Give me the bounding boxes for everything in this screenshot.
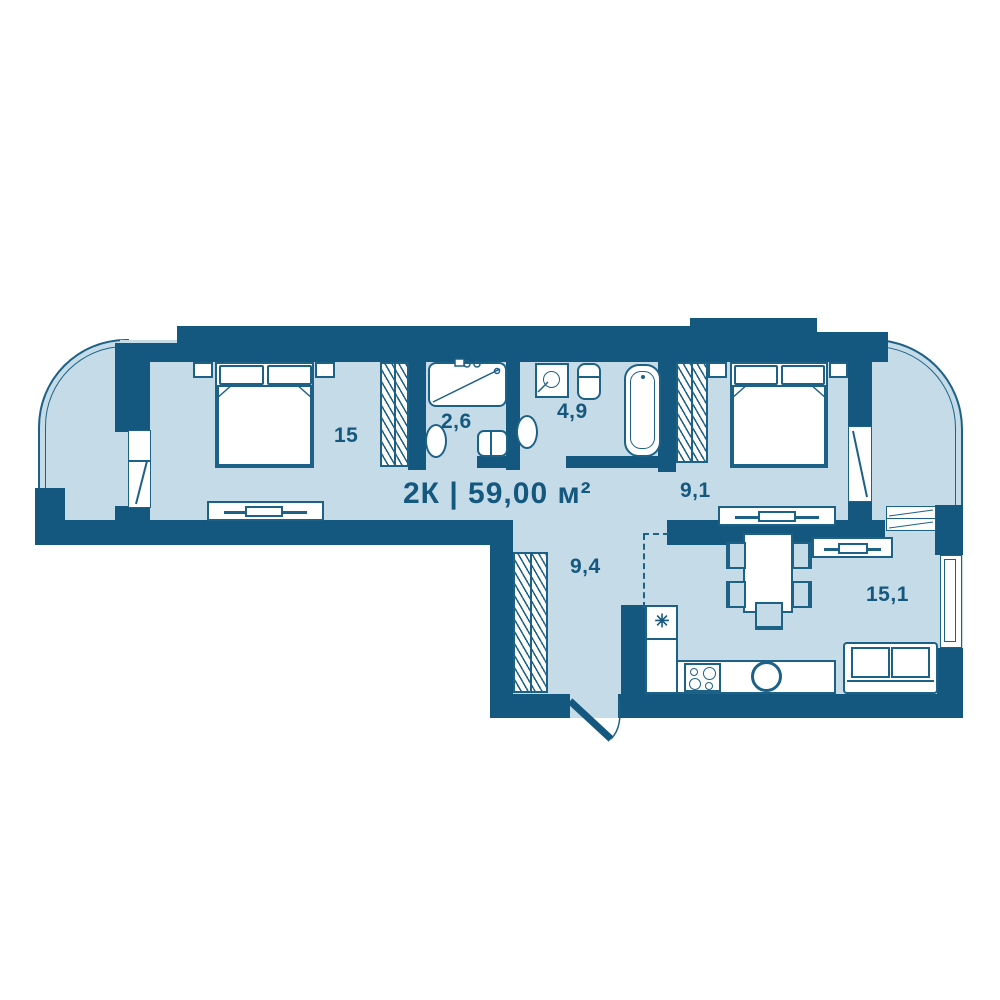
sofa [843,642,938,694]
washer-drum [543,371,560,388]
tv [838,543,868,554]
nightstand [315,362,335,378]
floor-plan: ✳ [0,0,1000,1000]
window-sill [886,518,936,531]
wall-bottom-entrance [490,694,570,718]
wall-bath-bottom-a [477,456,520,468]
tv [245,506,283,517]
wall-top-d [815,332,888,362]
toilet [477,430,508,457]
room-area-label-hallway: 9,4 [570,555,601,579]
kitchen-window-pane [944,559,956,642]
wall-balcony-pier-right [935,505,963,555]
kitchen-window [940,555,962,648]
kitchen-sink [751,661,782,692]
wall-hallway-left [490,545,513,698]
burner [705,682,713,690]
room-area-label-bedroom2: 9,1 [680,479,711,503]
wall-shower-bathroom [506,362,520,470]
wall-top-b [177,326,690,362]
chair [755,602,783,630]
wall-bath-bottom-b [566,456,658,468]
wall-left-upper [115,343,150,432]
bathtub [624,364,661,457]
wardrobe [380,362,409,467]
bathtub-drain [641,375,645,379]
pillow [219,365,264,385]
double-bed [215,362,314,468]
balcony-door-right [848,426,872,502]
room-area-label-kitchen-living: 15,1 [866,583,909,607]
zone-boundary-dashed-h [643,533,669,535]
chair [726,581,746,608]
tv [758,511,796,522]
burner [690,668,698,676]
nightstand [829,362,848,378]
wall-bottom-kitchen [618,694,940,718]
zone-boundary-dashed-v [643,534,645,608]
burner [703,667,716,680]
wall-top-c [690,318,817,362]
balcony-door-left [128,430,151,508]
pillow [267,365,312,385]
room-area-label-bedroom1: 15 [334,424,358,448]
wardrobe [676,362,708,463]
wall-bottom-left [35,520,513,545]
wall-bedroom2-right-lower [848,502,872,533]
nightstand [708,362,727,378]
wall-bedroom2-right-upper [848,362,872,426]
toilet [577,363,601,400]
room-area-label-shower: 2,6 [441,410,472,434]
bathtub-basin [630,371,655,449]
tv-stand [207,501,324,521]
mattress [217,385,312,466]
shower-bath [428,362,507,407]
pillow [781,365,825,385]
wardrobe [513,552,548,693]
nightstand [193,362,213,378]
floor-entrance-gap [568,694,620,718]
washing-machine [535,363,569,398]
tv-stand [718,506,836,526]
chair [726,542,746,569]
double-bed [730,362,828,468]
sofa-cushion [891,647,930,678]
tv-stand [812,537,893,558]
room-area-label-bathroom: 4,9 [557,400,588,424]
burner [689,678,701,690]
wall-kitchen-right-lower [937,648,963,718]
sofa-cushion [851,647,890,678]
wall-bedroom1-shower [408,362,426,470]
pillow [734,365,778,385]
wall-kitchen-divider [621,605,645,697]
vent-icon: ✳ [651,610,673,632]
wall-balcony-pier-left [35,488,65,522]
mattress [732,385,826,466]
stove-icon [684,663,721,692]
chair [792,542,812,569]
plan-title: 2К | 59,00 м² [403,477,592,511]
sink [516,415,538,449]
chair [792,581,812,608]
dining-table [743,533,793,613]
